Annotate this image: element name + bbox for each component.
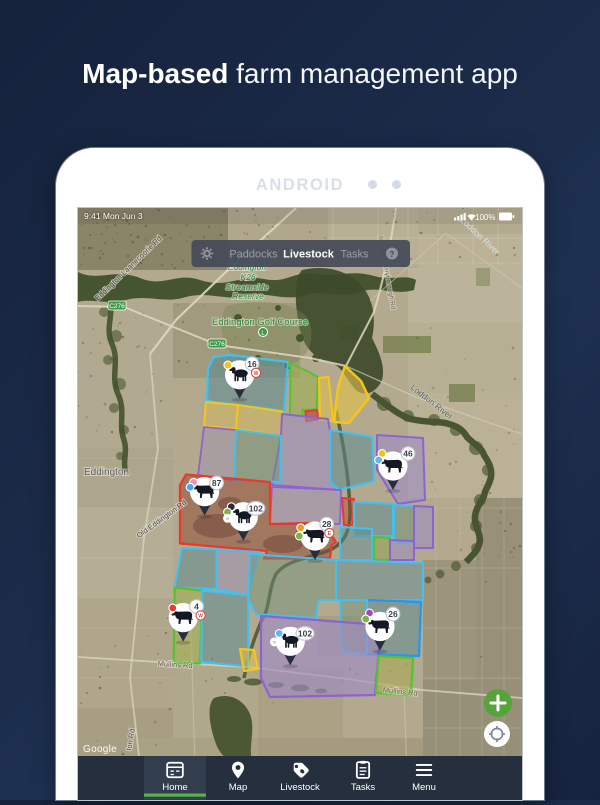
svg-text:Menu: Menu [412,782,436,793]
svg-text:4: 4 [194,602,199,612]
svg-text:Paddocks: Paddocks [229,249,278,261]
svg-text:W: W [254,371,259,377]
svg-text:Reserve: Reserve [232,291,264,301]
svg-text:Livestock: Livestock [283,249,335,261]
svg-text:9:41 Mon Jun 3: 9:41 Mon Jun 3 [84,211,143,221]
svg-text:?: ? [390,250,395,259]
svg-text:102: 102 [298,628,312,638]
svg-text:W: W [198,613,203,619]
svg-text:K26: K26 [240,272,255,282]
svg-text:26: 26 [388,609,398,619]
svg-text:Tasks: Tasks [351,782,376,793]
svg-text:87: 87 [212,478,222,488]
svg-text:16: 16 [247,359,257,369]
svg-text:Eddington Golf Course: Eddington Golf Course [212,317,308,328]
svg-text:Google: Google [83,744,117,755]
svg-text:Home: Home [162,782,187,793]
svg-text:102: 102 [249,503,263,513]
svg-text:C276: C276 [109,303,125,310]
svg-text:Tasks: Tasks [340,249,369,261]
svg-text:Map: Map [229,782,247,793]
svg-text:28: 28 [322,519,332,529]
svg-text:C276: C276 [209,341,225,348]
svg-text:100%: 100% [475,213,495,222]
svg-text:46: 46 [403,449,413,459]
svg-text:Livestock: Livestock [280,782,320,793]
svg-text:Eddington: Eddington [84,467,129,478]
